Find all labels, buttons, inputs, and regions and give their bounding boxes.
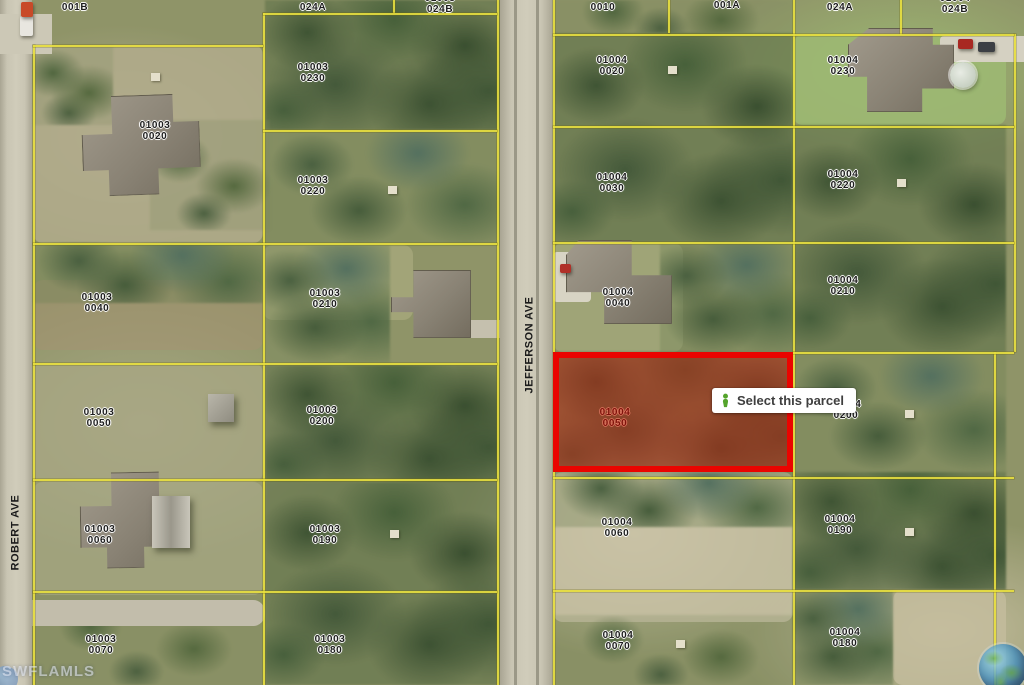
parcel-block-number: 01004	[828, 55, 859, 66]
brush	[553, 615, 793, 685]
parcel-lot-number: 0040	[603, 298, 634, 309]
aerial-parcel-map[interactable]: ROBERT AVE JEFFERSON AVE 01003001B010030…	[0, 0, 1024, 685]
parcel-boundary-line	[793, 0, 795, 685]
parcel-boundary-line	[668, 0, 670, 33]
parcel-block-number: 01004	[825, 514, 856, 525]
ground-marker	[897, 179, 906, 187]
parcel-lot-number: 0210	[310, 299, 341, 310]
parcel-lot-number: 0220	[298, 186, 329, 197]
shed-roof	[152, 496, 190, 548]
parcel-boundary-line	[900, 0, 902, 35]
parcel-boundary-line	[263, 13, 497, 15]
parcel-lot-number: 001B	[60, 2, 91, 13]
parcel-lot-number: 0060	[602, 528, 633, 539]
parcel-boundary-line	[793, 352, 1014, 354]
parcel-lot-number: 0230	[298, 73, 329, 84]
parcel-boundary-line	[33, 45, 263, 47]
truck-bed	[21, 2, 33, 17]
tree-canopy	[33, 45, 113, 125]
parcel-block-number: 01003	[140, 120, 171, 131]
parcel-boundary-line	[1014, 34, 1016, 352]
tree-canopy	[553, 33, 793, 243]
parcel-label: 01004001A	[712, 0, 743, 11]
parcel-boundary-line	[263, 13, 265, 685]
parcel-boundary-line	[33, 479, 497, 481]
parcel-boundary-line	[33, 45, 35, 685]
parcel-boundary-line	[553, 477, 1014, 479]
parcel-label: 010040230	[828, 55, 859, 77]
parcel-block-number: 01003	[315, 634, 346, 645]
parcel-label: 010030210	[310, 288, 341, 310]
parcel-label: 010030060	[85, 524, 116, 546]
parcel-block-number: 01004	[603, 630, 634, 641]
parcel-lot-number: 0210	[828, 286, 859, 297]
parcel-lot-number: 0070	[86, 645, 117, 656]
parcel-label: 010030040	[82, 292, 113, 314]
parcel-label: 01003001B	[60, 0, 91, 13]
parcel-label: 010030180	[315, 634, 346, 656]
parcel-block-number: 01003	[307, 405, 338, 416]
street-label-jefferson-ave: JEFFERSON AVE	[524, 288, 536, 403]
parcel-label: 010030050	[84, 407, 115, 429]
tree-canopy	[793, 125, 1006, 352]
parcel-lot-number: 0050	[600, 418, 631, 429]
parcel-lot-number: 024A	[825, 2, 856, 13]
ground-marker	[905, 528, 914, 536]
parcel-boundary-line	[553, 34, 1014, 36]
parcel-block-number: 01004	[603, 287, 634, 298]
car-dark	[978, 42, 995, 52]
parcel-label: 010040020	[597, 55, 628, 77]
shed-roof	[208, 394, 234, 422]
brush	[33, 243, 263, 303]
parcel-boundary-line	[497, 0, 499, 685]
parcel-boundary-line	[33, 591, 497, 593]
pool	[950, 62, 976, 88]
parcel-boundary-line	[994, 352, 996, 685]
parcel-block-number: 01004	[830, 627, 861, 638]
parcel-label: 010040220	[828, 169, 859, 191]
tree-canopy	[660, 243, 793, 352]
ground-marker	[390, 530, 399, 538]
parcel-label: 010040060	[602, 517, 633, 539]
parcel-lot-number: 001A	[712, 0, 743, 11]
parcel-block-number: 01004	[602, 517, 633, 528]
mls-watermark-text: SWFLAMLS	[2, 663, 95, 680]
tooltip-label: Select this parcel	[737, 393, 844, 408]
ground-marker	[676, 640, 685, 648]
parcel-boundary-line	[553, 242, 1014, 244]
road-wheel-track	[514, 0, 517, 685]
road-wheel-track	[536, 0, 539, 685]
ground-marker	[905, 410, 914, 418]
parcel-lot-number: 0020	[597, 66, 628, 77]
parcel-block-number: 01004	[597, 172, 628, 183]
parcel-lot-number: 024B	[425, 4, 456, 15]
car-red	[958, 39, 973, 49]
parcel-block-number: 01003	[86, 634, 117, 645]
parcel-block-number: 01003	[310, 288, 341, 299]
parcel-lot-number: 0050	[84, 418, 115, 429]
parcel-boundary-line	[33, 363, 497, 365]
truck-cab	[20, 16, 33, 36]
ground-marker	[388, 186, 397, 194]
parcel-lot-number: 0030	[597, 183, 628, 194]
parcel-lot-number: 0190	[825, 525, 856, 536]
parcel-select-pin-icon	[720, 393, 731, 408]
parcel-boundary-line	[33, 243, 497, 245]
parcel-lot-number: 0180	[830, 638, 861, 649]
parcel-label: 010030230	[298, 62, 329, 84]
street-label-text: JEFFERSON AVE	[524, 297, 536, 394]
lawn-patch	[33, 363, 263, 482]
parcel-boundary-line	[263, 130, 497, 132]
parcel-lot-number: 0180	[315, 645, 346, 656]
parcel-label: 010030200	[307, 405, 338, 427]
parcel-block-number: 01003	[84, 407, 115, 418]
parcel-label: 010040050	[600, 407, 631, 429]
parcel-lot-number: 0070	[603, 641, 634, 652]
brush	[553, 472, 793, 527]
parcel-block-number: 01004	[828, 169, 859, 180]
parcel-lot-number: 0010	[588, 2, 619, 13]
parcel-label: 010040210	[828, 275, 859, 297]
parcel-boundary-line	[393, 0, 395, 13]
parcel-label: 010040040	[603, 287, 634, 309]
parcel-lot-number: 0040	[82, 303, 113, 314]
tree-canopy	[265, 482, 500, 685]
parcel-label: 010040070	[603, 630, 634, 652]
parcel-label: 010040030	[597, 172, 628, 194]
parcel-boundary-line	[553, 0, 555, 685]
tree-canopy	[265, 365, 500, 482]
parcel-block-number: 01004	[597, 55, 628, 66]
parcel-lot-number: 0060	[85, 535, 116, 546]
parcel-label: 010030220	[298, 175, 329, 197]
road-robert-ave	[0, 0, 32, 685]
globe-earth-icon	[979, 644, 1024, 685]
parcel-label: 010030020	[140, 120, 171, 142]
street-label-robert-ave: ROBERT AVE	[10, 496, 22, 571]
parcel-label: 010040190	[825, 514, 856, 536]
parcel-label: 01003024A	[298, 0, 329, 13]
car-red	[560, 264, 571, 273]
parcel-label: 010040180	[830, 627, 861, 649]
parcel-block-number: 01004	[600, 407, 631, 418]
select-parcel-tooltip[interactable]: Select this parcel	[712, 388, 856, 413]
parcel-lot-number: 0200	[307, 416, 338, 427]
parcel-lot-number: 0220	[828, 180, 859, 191]
parcel-lot-number: 0020	[140, 131, 171, 142]
parcel-block-number: 01003	[310, 524, 341, 535]
parcel-block-number: 01003	[82, 292, 113, 303]
parcel-boundary-line	[553, 590, 1014, 592]
parcel-label: 010030190	[310, 524, 341, 546]
parcel-lot-number: 0190	[310, 535, 341, 546]
ground-marker	[668, 66, 677, 74]
parcel-lot-number: 024A	[298, 2, 329, 13]
parcel-boundary-line	[553, 126, 1014, 128]
driveway	[32, 600, 265, 626]
parcel-block-number: 01004	[828, 275, 859, 286]
parcel-label: 01004024A	[825, 0, 856, 13]
parcel-label: 01003024B	[425, 0, 456, 15]
parcel-lot-number: 024B	[940, 4, 971, 15]
street-label-text: ROBERT AVE	[10, 495, 22, 571]
ground-marker	[151, 73, 160, 81]
parcel-label: 01004024B	[940, 0, 971, 15]
parcel-block-number: 01003	[85, 524, 116, 535]
parcel-block-number: 01003	[298, 175, 329, 186]
parcel-lot-number: 0230	[828, 66, 859, 77]
parcel-label: 010040010	[588, 0, 619, 13]
parcel-block-number: 01003	[298, 62, 329, 73]
parcel-label: 010030070	[86, 634, 117, 656]
